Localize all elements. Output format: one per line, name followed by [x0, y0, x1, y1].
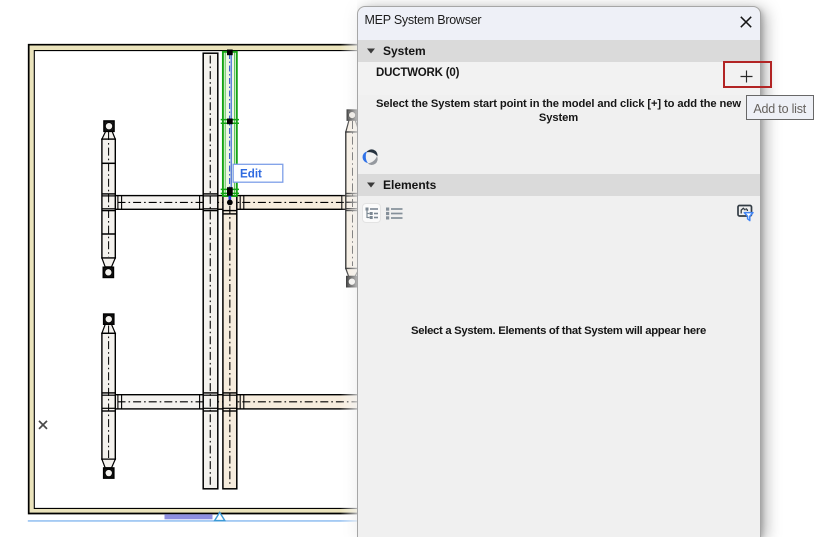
svg-text:Edit: Edit — [240, 168, 262, 181]
